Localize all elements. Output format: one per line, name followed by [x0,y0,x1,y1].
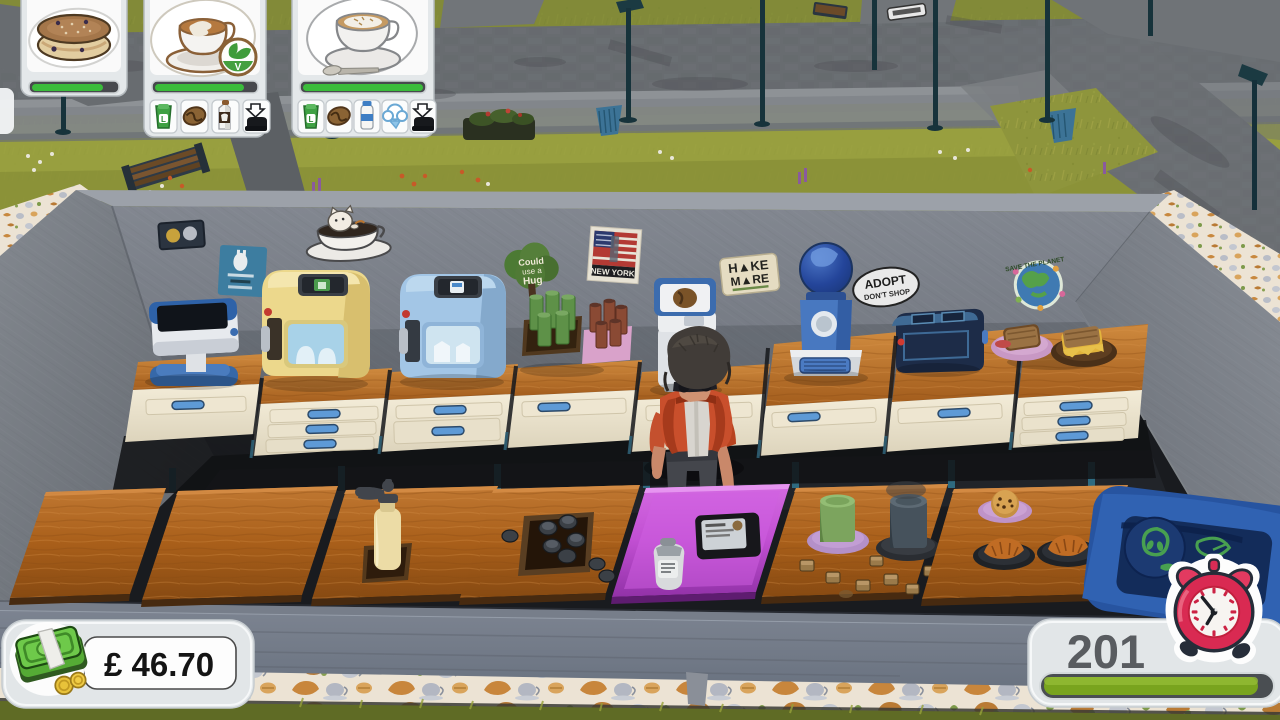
svg-text:201: 201 [1067,625,1145,678]
svg-text:£ 46.70: £ 46.70 [104,646,214,683]
svg-text:Hug: Hug [523,275,543,288]
svg-text:L: L [161,115,166,124]
svg-text:L: L [309,115,314,124]
svg-text:V: V [235,62,242,73]
